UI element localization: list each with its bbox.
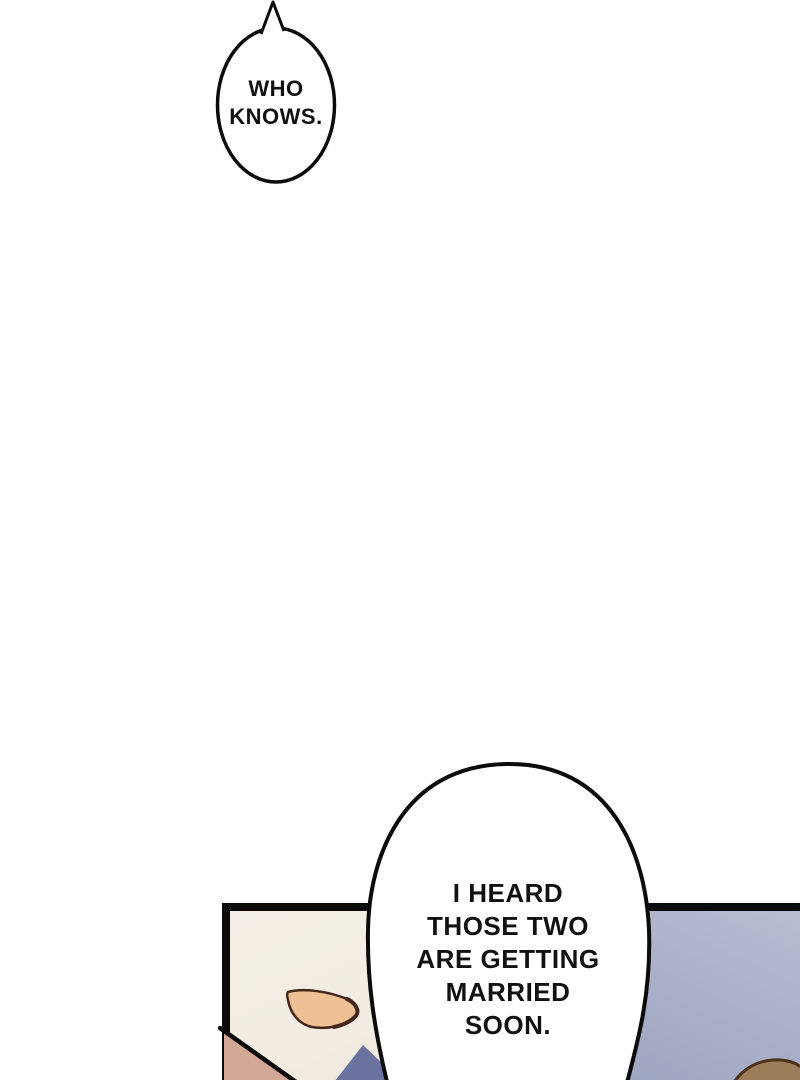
top-bubble-text: WHO KNOWS. xyxy=(210,75,342,131)
comic-page: WHO KNOWS. I HEARD THOSE TWO ARE GETTING… xyxy=(0,0,800,1080)
panel-bubble-text: I HEARD THOSE TWO ARE GETTING MARRIED SO… xyxy=(366,877,650,1042)
